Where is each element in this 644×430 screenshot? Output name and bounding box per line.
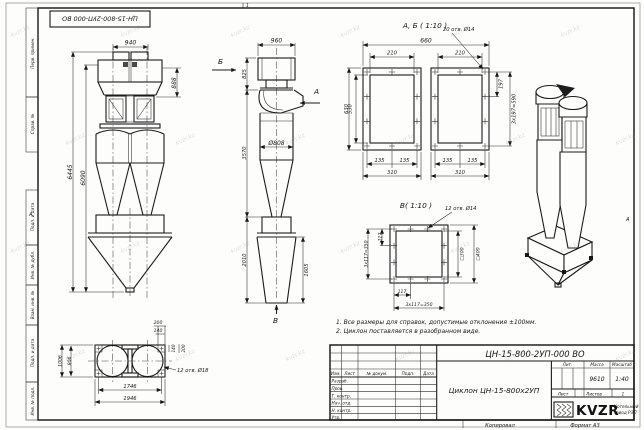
dim-117-bottom: 117 bbox=[398, 289, 407, 295]
dim-350-left: 3х117=350 bbox=[364, 240, 370, 267]
title-block: Изм. Лист № докум. Подп. Дата Разраб. Пр… bbox=[330, 345, 639, 429]
dim-350-bottom: 3х117=350 bbox=[405, 302, 432, 308]
dim-940: 940 bbox=[125, 40, 137, 47]
arrow-label-v: В bbox=[273, 316, 278, 325]
dim-6445: 6445 bbox=[67, 164, 74, 179]
notes: 1. Все размеры для справок, допустимые о… bbox=[336, 319, 536, 335]
detail-v-note: 12 отв. Ø14 bbox=[445, 205, 477, 212]
dim-806: 806 bbox=[67, 357, 73, 366]
dim-310b: 310 bbox=[455, 170, 466, 176]
dim-200-right: 200 bbox=[181, 344, 186, 352]
margin-label: Подп. и дата bbox=[30, 202, 35, 231]
tb-row-nkontr: Н. контр. bbox=[332, 408, 352, 413]
dim-6090: 6090 bbox=[80, 170, 87, 185]
dim-530: 530 bbox=[348, 103, 354, 114]
tb-listov-label: Листов bbox=[585, 392, 602, 397]
detail-v-holes bbox=[391, 226, 447, 282]
dim-960: 960 bbox=[271, 38, 283, 45]
designation-stamp: ЦН-15-800-2УП-000 ВО bbox=[50, 11, 150, 27]
dim-1746: 1746 bbox=[123, 384, 137, 390]
dim-1006: 1006 bbox=[58, 355, 64, 367]
tb-masshtab-label: Масштаб bbox=[612, 362, 632, 367]
tb-row-prov: Пров. bbox=[332, 386, 344, 391]
side-view: 960 Б 825 А Ø808 3570 bbox=[212, 38, 320, 326]
dim-3570: 3570 bbox=[242, 146, 248, 160]
tb-col-data: Дата bbox=[422, 371, 434, 376]
detail-ab-view: А, Б ( 1:10 ) 660 210 210 630 530 197 bbox=[344, 21, 518, 180]
tb-masshtab-value: 1:40 bbox=[615, 376, 629, 383]
tb-name: Циклон ЦН-15-800х2УП bbox=[449, 386, 540, 395]
margin-label: Перв. примен. bbox=[30, 37, 35, 68]
dim-140-right: 140 bbox=[171, 344, 176, 352]
dim-sq400: □400 bbox=[476, 247, 482, 260]
tb-row-razrab: Разраб. bbox=[332, 379, 348, 384]
dim-210b: 210 bbox=[455, 51, 466, 57]
margin-label: Подп. и дата bbox=[30, 338, 35, 367]
dim-210a: 210 bbox=[387, 51, 398, 57]
bottom-view: 200 140 140 200 1006 806 1746 1946 12 от… bbox=[58, 320, 210, 406]
drawing-sheet: kvzr.kzkvzr.kzkvzr.kzkvzr.kzkvzr.kzkvzr.… bbox=[0, 0, 644, 430]
tb-list-label: Лист bbox=[557, 392, 569, 397]
margin-label: Взам. инв. № bbox=[30, 290, 35, 319]
tb-listov-value: 1 bbox=[622, 392, 625, 397]
drawing-canvas: 1 А А Перв. примен. Справ. № Подп. и дат… bbox=[0, 0, 644, 430]
dim-310a: 310 bbox=[387, 170, 398, 176]
dim-135c: 135 bbox=[443, 158, 454, 164]
margin-stamps: Перв. примен. Справ. № Подп. и дата Инв.… bbox=[26, 8, 38, 420]
company-line-1: Котельный bbox=[614, 404, 639, 409]
detail-ab-note: 20 отв. Ø14 bbox=[443, 26, 475, 33]
tb-kopiroval: Копировал bbox=[485, 423, 515, 429]
dim-590: 3х197=590 bbox=[512, 93, 518, 124]
dim-1946: 1946 bbox=[123, 396, 137, 402]
logo-text: KVZR bbox=[576, 403, 619, 419]
detail-v-view: В( 1:10 ) 12 отв. Ø14 117 3х117=350 117 … bbox=[364, 201, 482, 311]
margin-label: Инв. № дубл. bbox=[30, 251, 35, 280]
tb-lit-label: Лит. bbox=[562, 362, 573, 367]
zone-letter-right: А bbox=[625, 217, 630, 223]
front-view: 940 888 bbox=[67, 40, 181, 299]
tb-col-doc: № докум. bbox=[366, 371, 388, 376]
arrow-label-a: А bbox=[313, 87, 319, 96]
dim-sq300: □300 bbox=[460, 247, 466, 260]
dim-d808: Ø808 bbox=[267, 140, 284, 147]
detail-ab-title: А, Б ( 1:10 ) bbox=[402, 21, 447, 30]
dim-2010: 2010 bbox=[242, 253, 248, 267]
dim-117-left: 117 bbox=[378, 233, 384, 242]
tb-row-utv: Утв. bbox=[332, 415, 341, 420]
detail-ab-holes bbox=[364, 69, 488, 149]
tb-format: Формат А3 bbox=[570, 423, 600, 429]
tb-col-podp: Подп. bbox=[402, 371, 415, 376]
dim-200-top: 200 bbox=[154, 320, 163, 326]
tb-col-izm: Изм. bbox=[331, 371, 341, 376]
arrow-label-b: Б bbox=[218, 57, 223, 66]
dim-660: 660 bbox=[420, 38, 432, 45]
dim-888: 888 bbox=[171, 77, 178, 89]
note-line-2: 2. Циклон поставляется в разобранном вид… bbox=[336, 328, 480, 335]
dim-135a: 135 bbox=[375, 158, 386, 164]
company-line-2: завод РЭП bbox=[614, 410, 637, 415]
detail-v-title: В( 1:10 ) bbox=[400, 201, 432, 210]
designation-stamp-text: ЦН-15-800-2УП-000 ВО bbox=[62, 15, 138, 23]
dim-1605: 1605 bbox=[304, 263, 310, 277]
dim-135b: 135 bbox=[400, 158, 411, 164]
tb-massa-value: 9610 bbox=[589, 376, 604, 383]
tb-col-list: Лист bbox=[343, 371, 355, 376]
dim-135d: 135 bbox=[468, 158, 479, 164]
tb-massa-label: Масса bbox=[590, 362, 604, 367]
tb-row-tkontr: Т. контр. bbox=[332, 393, 351, 398]
dim-825: 825 bbox=[242, 68, 248, 79]
tb-designation: ЦН-15-800-2УП-000 ВО bbox=[485, 349, 585, 359]
tb-row-nachotd: Нач. отд. bbox=[332, 401, 352, 406]
margin-label: Инв. № подл. bbox=[30, 387, 35, 416]
margin-label: Справ. № bbox=[30, 113, 35, 134]
dim-197: 197 bbox=[499, 78, 505, 89]
fold-mark: 1 bbox=[246, 3, 249, 9]
company-logo: KVZR Котельный завод РЭП bbox=[554, 402, 639, 419]
iso-view bbox=[525, 84, 593, 287]
bottom-view-note: 12 отв. Ø18 bbox=[177, 367, 209, 374]
note-line-1: 1. Все размеры для справок, допустимые о… bbox=[336, 319, 536, 326]
